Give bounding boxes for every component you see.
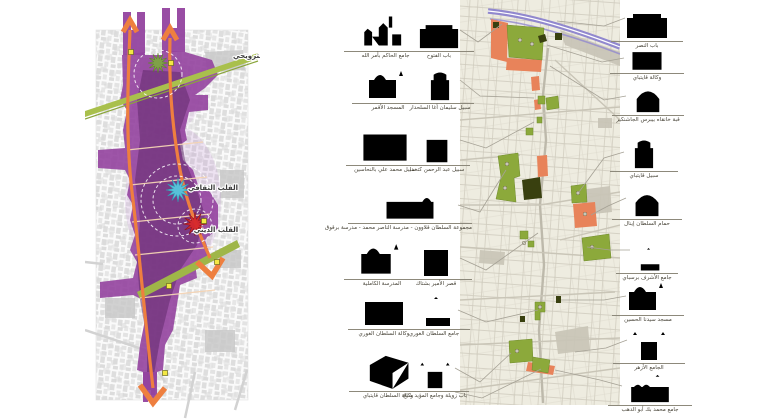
dome-sketch-icon — [626, 180, 668, 218]
mosque-sketch-icon — [366, 62, 410, 102]
monument-label: باب زويلة وجامع المؤيد شيخ — [401, 391, 469, 400]
mosque-sketch-icon — [626, 280, 670, 314]
node-marker — [129, 50, 134, 55]
minaret-sketch-icon — [412, 284, 456, 328]
label-culture-core: القلب الثقافي — [188, 184, 238, 192]
monument-sketch-card: مجموعة السلطان قلاوون - مدرسة الناصر محم… — [362, 184, 458, 232]
portal-sketch-icon — [418, 118, 456, 164]
label-religion-core: القلب الديني — [194, 226, 238, 234]
complex-sketch-icon — [362, 184, 458, 222]
monument-sketch-card: باب الفتوح — [418, 8, 460, 60]
monument-label: سبيل عبد الرحمن كتخدا — [404, 165, 470, 174]
courtyard-sketch-icon — [363, 350, 413, 390]
monument-sketch-card: جامع محمد بك أبو الدهب — [622, 372, 678, 414]
monument-sketch-card: مسجد سيدنا الحسين — [626, 280, 670, 324]
monument-sketch-card: الجامع الأزهر — [627, 322, 671, 372]
facade-sketch-icon — [360, 122, 410, 164]
node-marker — [169, 61, 174, 66]
label-leisure-core: القلب الترويحي — [233, 52, 260, 60]
gate-sketch-icon — [625, 4, 669, 40]
gate-sketch-icon — [418, 8, 460, 50]
heritage-map — [460, 0, 620, 410]
monument-sketch-card: وكالة قايتباي — [624, 46, 670, 82]
monument-label: جامع السلطان الغوري — [398, 329, 470, 338]
monument-label: سبيل سليمان أغا السلحدار — [406, 103, 474, 112]
monument-sketch-card: سبيل عبد الرحمن كتخدا — [418, 118, 456, 174]
portal-sketch-icon — [414, 232, 458, 278]
sabil-sketch-icon — [624, 138, 664, 170]
monument-sketch-card: جامع الأشرف برسباي — [630, 230, 664, 282]
dome-sketch-icon — [626, 82, 670, 114]
left-strategy-map: القلب الترويحي القلب الثقافي القلب الدين… — [85, 0, 260, 420]
node-marker — [202, 219, 207, 224]
monument-label: حمام السلطان إينال — [612, 219, 682, 228]
monument-sketch-card: قبة خانقاه بيبرس الجاشنكير — [626, 82, 670, 124]
node-marker — [215, 260, 220, 265]
monument-sketch-card: سبيل سليمان أغا السلحدار — [420, 58, 460, 112]
facade-sketch-icon — [362, 288, 406, 328]
mosque-sketch-icon — [358, 236, 406, 278]
monument-sketch-card: جامع السلطان الغوري — [412, 284, 456, 338]
sabil-sketch-icon — [420, 58, 460, 102]
monument-sketch-card: حمام السلطان إينال — [626, 180, 668, 228]
monument-sketch-card: سبيل محمد علي بالنحاسين — [360, 122, 410, 174]
monument-sketch-card: قصر الأمير بشتاك — [414, 232, 458, 288]
monument-label: جامع محمد بك أبو الدهب — [608, 405, 692, 414]
monument-label: سبيل قايتباي — [610, 171, 678, 180]
node-marker — [163, 371, 168, 376]
big-mosque-sketch-icon — [622, 372, 678, 404]
heritage-study-poster: القلب الترويحي القلب الثقافي القلب الدين… — [0, 0, 768, 420]
monument-sketch-card: سبيل قايتباي — [624, 138, 664, 180]
monument-label: قبة خانقاه بيبرس الجاشنكير — [612, 115, 684, 124]
facade-sketch-icon — [624, 46, 670, 72]
twin-minaret-gate-sketch-icon — [415, 342, 455, 390]
monument-sketch-card: باب النصر — [625, 4, 669, 50]
node-marker — [167, 284, 172, 289]
panorama-sketch-icon — [358, 12, 413, 50]
monument-sketch-card: المسجد الأقمر — [366, 62, 410, 112]
monument-sketch-card: المدرسة الكاملية — [358, 236, 406, 288]
monument-sketch-card: باب زويلة وجامع المؤيد شيخ — [415, 342, 455, 400]
monument-label: مجموعة السلطان قلاوون - مدرسة الناصر محم… — [348, 223, 472, 232]
twin-minaret-gate-sketch-icon — [627, 322, 671, 362]
minaret-sketch-icon — [630, 230, 664, 272]
monument-label: الجامع الأزهر — [613, 363, 685, 372]
monument-label: وكالة قايتباي — [610, 73, 684, 82]
